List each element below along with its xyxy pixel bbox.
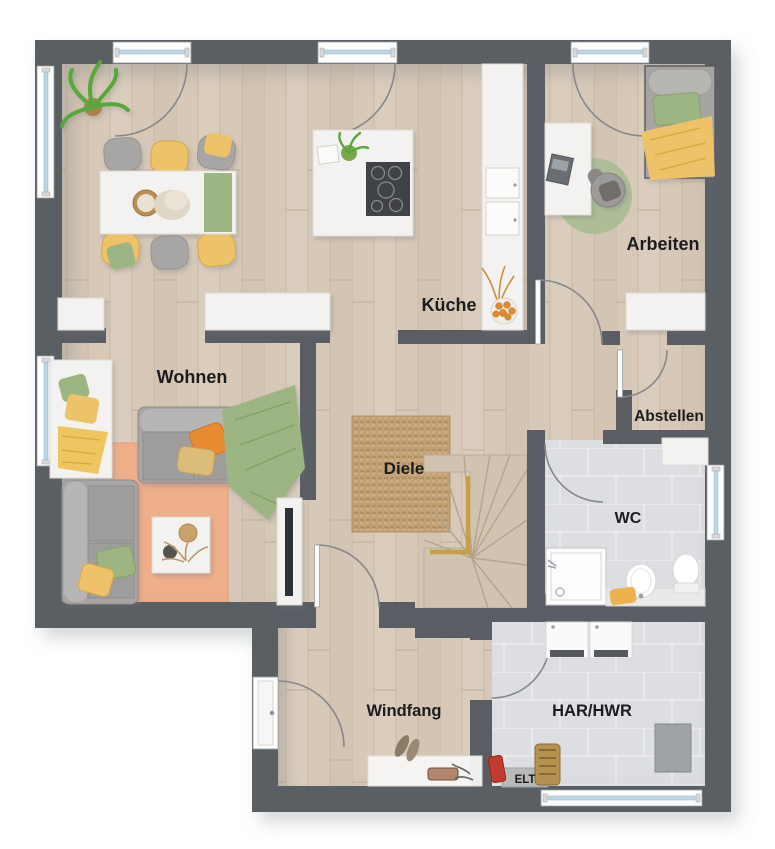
room-label-diele: Diele bbox=[384, 459, 425, 478]
table-runner bbox=[204, 173, 232, 232]
room-label-elt: ELT bbox=[515, 774, 536, 786]
shower-icon bbox=[546, 548, 606, 605]
wall-kitchen-bottom bbox=[398, 330, 538, 344]
kitchen-terrace-door-icon bbox=[318, 42, 397, 63]
left-window-top-icon bbox=[37, 66, 54, 198]
arbeiten-sideboard bbox=[626, 293, 705, 330]
toilet-icon bbox=[673, 554, 699, 593]
tv-icon bbox=[285, 508, 293, 596]
sofa-left bbox=[62, 480, 138, 604]
room-label-windfang: Windfang bbox=[367, 702, 442, 720]
arbeiten-terrace-door-icon bbox=[571, 42, 649, 63]
daybed bbox=[641, 66, 715, 180]
dryer-icon bbox=[590, 622, 632, 658]
room-label-har-hwr: HAR/HWR bbox=[552, 702, 632, 720]
room-label-wohnen: Wohnen bbox=[157, 367, 228, 387]
arbeiten-room-door-leaf bbox=[536, 280, 541, 344]
room-label-arbeiten: Arbeiten bbox=[626, 234, 699, 254]
wall-wohnen-diele-stub bbox=[300, 328, 316, 500]
window-bench bbox=[50, 360, 112, 478]
room-label-wc: WC bbox=[615, 510, 642, 527]
windfang-diele-door-leaf bbox=[315, 545, 320, 607]
washer-icon bbox=[546, 622, 588, 658]
floor-plan-canvas: Wohnen Küche Arbeiten Abstellen Diele WC… bbox=[0, 0, 775, 849]
tv-console bbox=[277, 498, 302, 605]
dining-table bbox=[100, 171, 236, 234]
wall-wc-left bbox=[527, 430, 545, 620]
pillow-sand bbox=[176, 446, 215, 477]
wc-window-icon bbox=[707, 465, 724, 540]
coffee-table bbox=[152, 517, 210, 573]
room-label-abstellen: Abstellen bbox=[634, 408, 704, 425]
freezer-box bbox=[655, 724, 691, 772]
floor-plan-svg: Wohnen Küche Arbeiten Abstellen Diele WC… bbox=[0, 0, 775, 849]
room-label-kueche: Küche bbox=[421, 295, 476, 315]
sideboard-large bbox=[205, 293, 330, 330]
storage-bag bbox=[535, 744, 560, 785]
abstellen-door-leaf bbox=[618, 350, 623, 397]
wall-under-stairs bbox=[415, 608, 492, 638]
door-handle-icon bbox=[270, 711, 274, 715]
office-desk bbox=[545, 123, 591, 215]
wall-wohnen-bottom bbox=[35, 602, 278, 628]
entrance-door-icon bbox=[253, 677, 278, 749]
wc-wall-cabinet bbox=[662, 438, 708, 465]
built-in-oven2-icon bbox=[486, 202, 519, 235]
built-in-oven-icon bbox=[486, 168, 519, 198]
wall-har-top bbox=[470, 608, 705, 622]
kitchen-tall-cabinet bbox=[482, 64, 523, 330]
sideboard-small bbox=[58, 298, 104, 330]
kitchen-island bbox=[313, 130, 413, 236]
dining-terrace-door-icon bbox=[113, 42, 191, 63]
har-window-icon bbox=[541, 790, 702, 806]
